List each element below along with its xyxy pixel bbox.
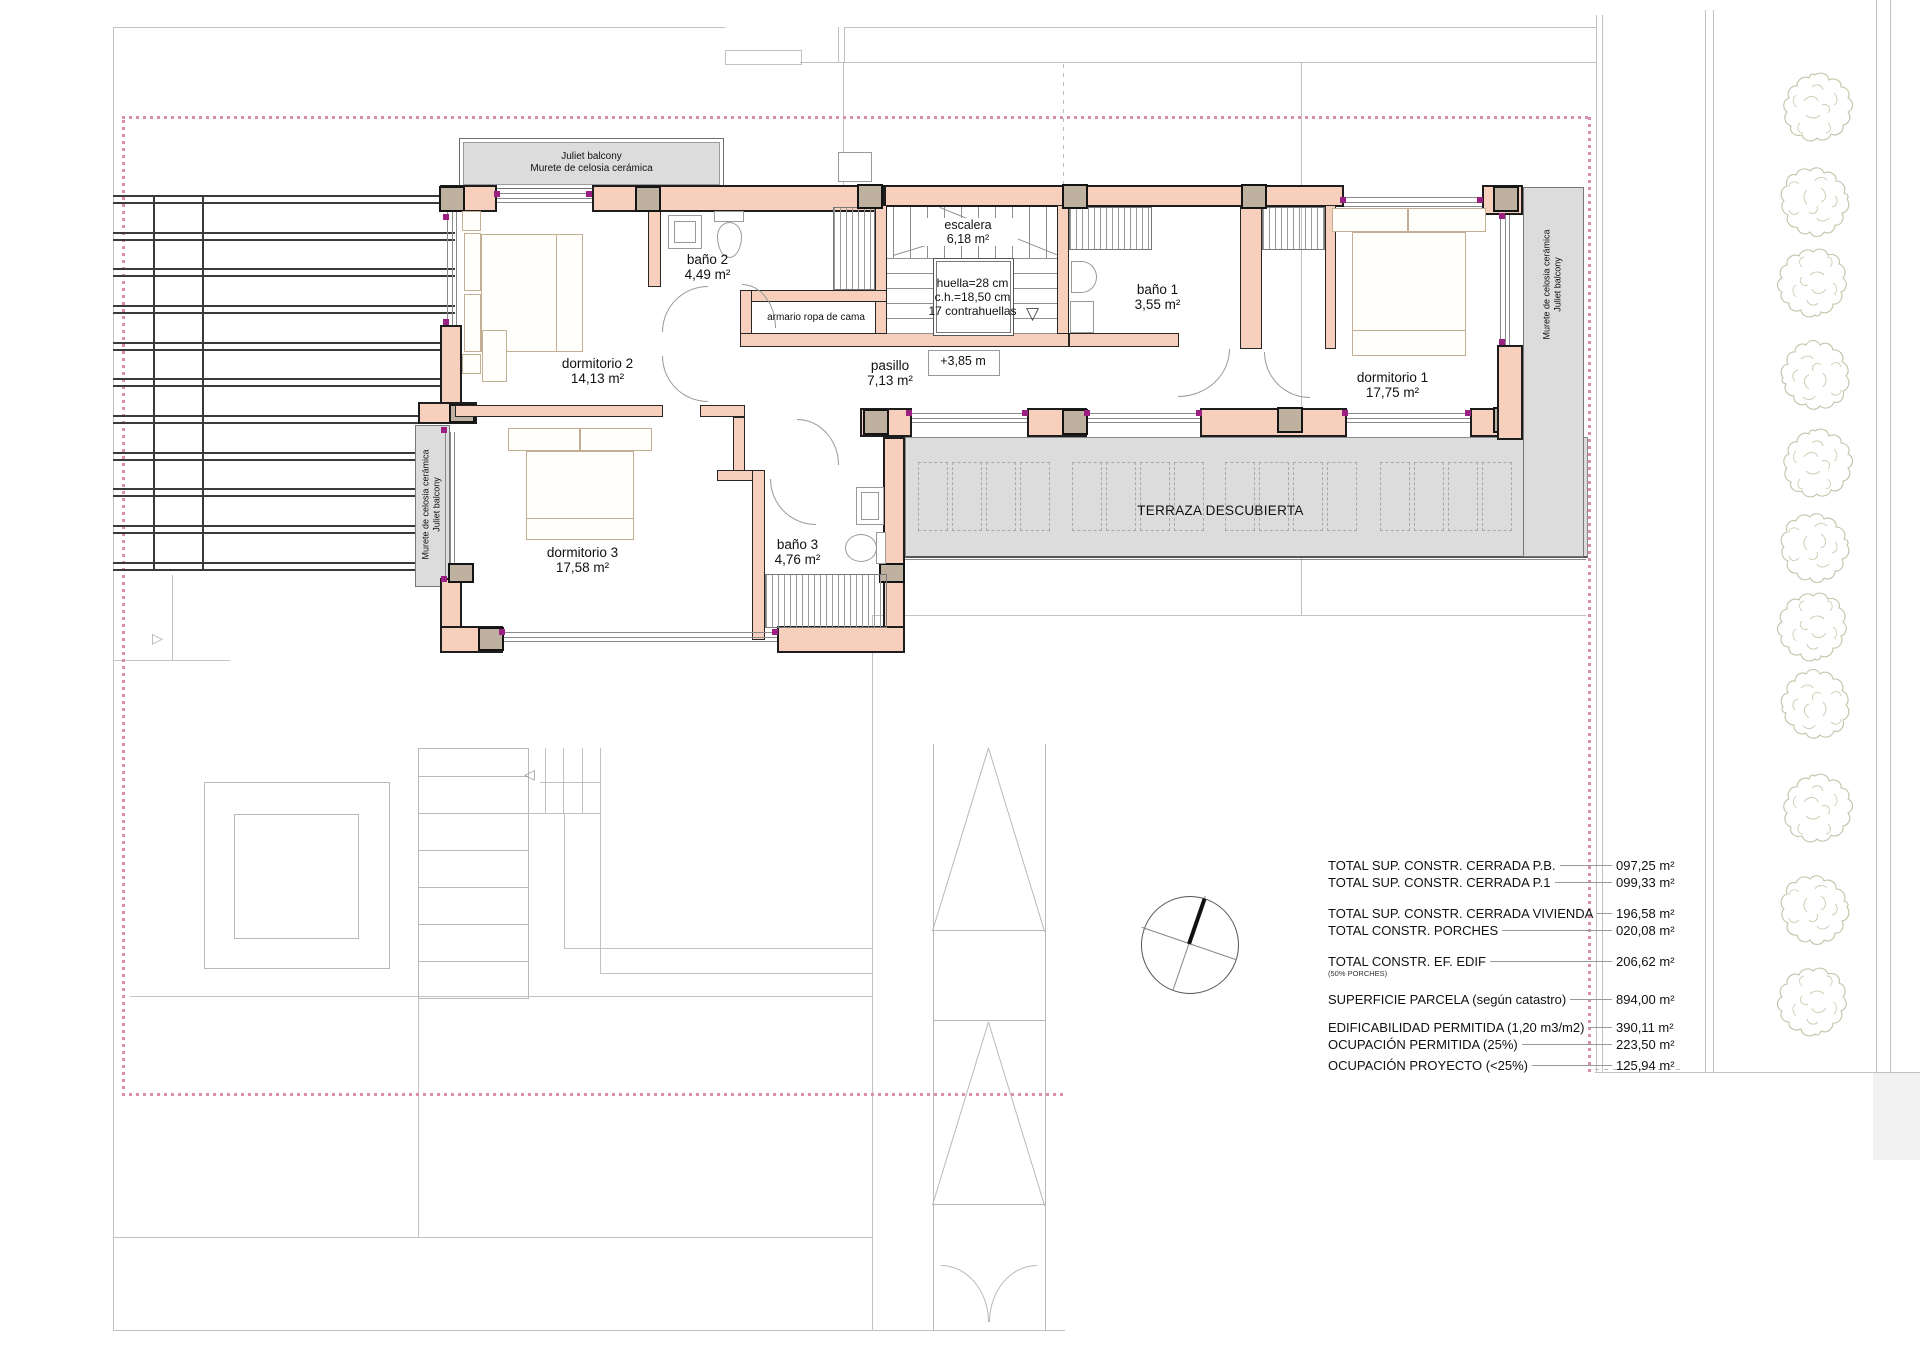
table-row: OCUPACIÓN PROYECTO (<25%)125,94 m² [1328, 1058, 1696, 1073]
escalera-name: escalera [918, 218, 1018, 232]
bano3-label: baño 3 4,76 m² [750, 537, 845, 567]
site-line [113, 27, 725, 28]
roof-line [988, 748, 1045, 932]
stair-dimensions-label: huella=28 cm c.h.=18,50 cm 17 contrahuel… [900, 276, 1045, 318]
leader-line [1502, 930, 1612, 931]
gate-swing-arc [989, 1265, 1037, 1322]
juliet-balcony-top-label: Juliet balcony Murete de celosia cerámic… [460, 151, 723, 174]
property-boundary-dash [122, 1093, 1065, 1096]
window [445, 432, 455, 578]
bed-pillow [508, 428, 580, 451]
site-line [113, 27, 114, 1330]
window [1347, 413, 1470, 423]
bed-pillow [580, 428, 652, 451]
courtyard-inner-outline [234, 814, 359, 939]
window [1087, 413, 1200, 423]
side-table [462, 354, 481, 374]
roof-line [988, 1022, 1045, 1206]
site-line [933, 1020, 1045, 1021]
table-row: TOTAL SUP. CONSTR. CERRADA VIVIENDA196,5… [1328, 906, 1696, 921]
window-marker [1340, 197, 1346, 203]
site-line [844, 27, 845, 62]
row-value: 020,08 m² [1616, 923, 1696, 938]
room-name: pasillo [845, 358, 935, 373]
column-marker [863, 409, 889, 435]
pergola-beam [113, 232, 455, 234]
table-row: TOTAL SUP. CONSTR. CERRADA P.1099,33 m² [1328, 875, 1696, 890]
window-marker [494, 191, 500, 197]
juliet-balcony-left-label: Murete de celosia cerámica Juliet balcon… [421, 430, 442, 580]
window-marker [906, 410, 912, 416]
leader-line [1570, 999, 1612, 1000]
pergola-beam [113, 415, 418, 417]
dormitorio1-label: dormitorio 1 17,75 m² [1325, 370, 1460, 400]
pergola-beam [113, 385, 455, 387]
tree-icon [1784, 429, 1853, 497]
terrace-tile [952, 462, 982, 531]
table-row: TOTAL CONSTR. EF. EDIF206,62 m² [1328, 954, 1696, 969]
pergola-beam [113, 495, 418, 497]
bed [1352, 232, 1466, 356]
vent-shaft [838, 152, 872, 182]
bano1-label: baño 1 3,55 m² [1110, 282, 1205, 312]
terrace-tile [1020, 462, 1050, 531]
window-marker [772, 629, 778, 635]
window [447, 212, 457, 325]
leader-line [1555, 882, 1612, 883]
pergola-beam [113, 452, 418, 454]
window [912, 413, 1027, 423]
tree-icon [1778, 968, 1847, 1036]
tree-icon [1781, 514, 1849, 583]
pasillo-label: pasillo 7,13 m² [845, 358, 935, 388]
row-label: OCUPACIÓN PROYECTO (<25%) [1328, 1058, 1528, 1073]
leader-line [1522, 1044, 1612, 1045]
column-marker [1493, 186, 1519, 212]
pergola-beam [113, 532, 418, 534]
room-area: 3,55 m² [1110, 297, 1205, 312]
wall-segment [1497, 345, 1523, 440]
site-line [872, 615, 873, 1330]
leader-line [1597, 913, 1612, 914]
table-row-note: (50% PORCHES) [1328, 969, 1696, 978]
wall-segment [1069, 333, 1179, 347]
window-marker [1342, 410, 1348, 416]
row-value: 125,94 m² [1616, 1058, 1696, 1073]
room-name: baño 3 [750, 537, 845, 552]
pergola-beam [113, 525, 418, 527]
escalera-area: 6,18 m² [918, 232, 1018, 246]
column-marker [1241, 184, 1267, 209]
window-marker [1084, 410, 1090, 416]
window-marker [443, 214, 449, 220]
lower-stair-outline [418, 748, 529, 999]
leader-line [1490, 961, 1612, 962]
terrace-label: TERRAZA DESCUBIERTA [1128, 503, 1313, 518]
leader-line [1560, 865, 1612, 866]
window-marker [1196, 410, 1202, 416]
room-name: baño 2 [660, 252, 755, 267]
row-value: 206,62 m² [1616, 954, 1696, 969]
pergola-beam [113, 562, 418, 564]
wall-segment [740, 333, 1069, 347]
row-label: SUPERFICIE PARCELA (según catastro) [1328, 992, 1566, 1007]
property-boundary-dash [122, 116, 125, 1096]
site-line [418, 997, 419, 1237]
terrace-tile [1106, 462, 1136, 531]
site-structure [725, 50, 802, 65]
wall-segment [1240, 205, 1262, 349]
room-area: 17,75 m² [1325, 385, 1460, 400]
window-marker [1477, 197, 1483, 203]
site-line [540, 782, 600, 783]
table-row: EDIFICABILIDAD PERMITIDA (1,20 m3/m2)390… [1328, 1020, 1696, 1035]
bed-pillow [464, 233, 481, 291]
stair-direction-arrow-icon: ▷ [152, 630, 163, 647]
bed-fold-line [1353, 330, 1465, 331]
pergola-beam [113, 459, 418, 461]
toilet-tank [714, 211, 744, 222]
row-value: 097,25 m² [1616, 858, 1696, 873]
site-line [933, 744, 934, 1330]
bed-pillow [1332, 208, 1408, 232]
tree-icon [1781, 670, 1849, 739]
row-value: 390,11 m² [1616, 1020, 1696, 1035]
tree-icon [1778, 593, 1847, 661]
window [1344, 197, 1482, 207]
window-marker [1499, 213, 1505, 219]
tree-icon [1781, 876, 1849, 945]
door-arc [662, 356, 708, 402]
site-line [113, 1237, 872, 1238]
site-line [600, 748, 601, 973]
site-line [600, 973, 872, 974]
bench [482, 330, 507, 382]
site-line [1890, 0, 1891, 1072]
room-name: dormitorio 2 [530, 356, 665, 371]
row-label: OCUPACIÓN PERMITIDA (25%) [1328, 1037, 1518, 1052]
pergola-beam [113, 239, 455, 241]
site-line [582, 748, 583, 813]
terrace-tile [918, 462, 948, 531]
site-line [838, 27, 839, 62]
site-shading [1873, 1073, 1920, 1160]
site-line [1705, 10, 1706, 1072]
room-area: 4,76 m² [750, 552, 845, 567]
compass-circle [1141, 896, 1239, 994]
table-row: SUPERFICIE PARCELA (según catastro)894,0… [1328, 992, 1696, 1007]
dormitorio3-label: dormitorio 3 17,58 m² [515, 545, 650, 575]
pergola-beam [113, 342, 455, 344]
room-area: 4,49 m² [660, 267, 755, 282]
row-value: 196,58 m² [1616, 906, 1696, 921]
areas-table: TOTAL SUP. CONSTR. CERRADA P.B.097,25 m²… [1328, 858, 1696, 1073]
site-line [172, 575, 173, 660]
window-marker [499, 629, 505, 635]
room-name: baño 1 [1110, 282, 1205, 297]
pergola-beam [113, 422, 418, 424]
armario-label: armario ropa de cama [752, 312, 880, 324]
site-line [800, 62, 1597, 63]
floor-plan-sheet: ◁ ▷ TERRAZA DESCUBIERTA Juliet balcony M… [0, 0, 1920, 1357]
pergola-beam [113, 312, 455, 314]
site-line [563, 748, 564, 813]
window-marker [1022, 410, 1028, 416]
pergola-beam [113, 349, 455, 351]
window-marker [441, 427, 447, 433]
site-line [933, 1204, 1045, 1205]
column-marker [1277, 407, 1303, 433]
terrace-tile [1327, 462, 1357, 531]
sink [1071, 261, 1097, 293]
sink [856, 487, 884, 525]
column-marker [1062, 184, 1088, 209]
row-label: TOTAL SUP. CONSTR. CERRADA P.1 [1328, 875, 1551, 890]
bed [526, 451, 634, 540]
stair-down-arrow-icon: ▽ [1026, 304, 1039, 324]
room-area: 17,58 m² [515, 560, 650, 575]
window [503, 632, 777, 642]
toilet [1070, 301, 1094, 333]
wall-segment [884, 185, 1064, 207]
terrace-tile [1140, 462, 1170, 531]
leader-line [1532, 1065, 1612, 1066]
escalera-label: escalera 6,18 m² [918, 218, 1018, 246]
window-marker [1465, 410, 1471, 416]
side-table [462, 211, 481, 231]
pergola-beam [113, 569, 418, 571]
wall-segment [1064, 185, 1244, 207]
site-line [545, 748, 546, 813]
door-arc [1178, 349, 1230, 397]
wall-segment [455, 405, 663, 417]
wall-segment [440, 325, 462, 407]
room-area: 7,13 m² [845, 373, 935, 388]
pergola-beam [113, 202, 455, 204]
pergola-beam [113, 488, 418, 490]
row-label: EDIFICABILIDAD PERMITIDA (1,20 m3/m2) [1328, 1020, 1584, 1035]
site-line [933, 930, 1045, 931]
terrace-tile [1293, 462, 1323, 531]
bano2-label: baño 2 4,49 m² [660, 252, 755, 282]
north-compass [1141, 896, 1237, 992]
window-marker [1499, 339, 1505, 345]
gate-swing-arc [941, 1265, 989, 1322]
row-label: TOTAL SUP. CONSTR. CERRADA VIVIENDA [1328, 906, 1593, 921]
closet-hatch [1069, 207, 1152, 250]
juliet-balcony-top: Juliet balcony Murete de celosia cerámic… [459, 138, 724, 189]
pergola-beam [113, 378, 455, 380]
site-line [564, 813, 565, 948]
window-marker [586, 191, 592, 197]
closet-hatch [1262, 207, 1325, 250]
pergola-beam [113, 275, 455, 277]
pergola-post-line [202, 195, 204, 571]
door-arc [770, 479, 816, 525]
site-line [1045, 744, 1046, 1330]
terrace-tile [1448, 462, 1478, 531]
shower-hatch [765, 574, 887, 628]
site-line [113, 660, 230, 661]
site-line [1713, 10, 1714, 1072]
row-label: TOTAL CONSTR. PORCHES [1328, 923, 1498, 938]
tree-icon [1784, 774, 1853, 842]
row-label: TOTAL SUP. CONSTR. CERRADA P.B. [1328, 858, 1556, 873]
room-name: dormitorio 1 [1325, 370, 1460, 385]
row-value: 223,50 m² [1616, 1037, 1696, 1052]
row-label: TOTAL CONSTR. EF. EDIF [1328, 954, 1486, 969]
site-line [564, 948, 872, 949]
wall-segment [777, 626, 905, 653]
bed-pillow [464, 294, 481, 352]
toilet [845, 534, 877, 562]
site-line [1063, 62, 1064, 185]
table-row: TOTAL SUP. CONSTR. CERRADA P.B.097,25 m² [1328, 858, 1696, 873]
property-boundary-dash [122, 116, 1590, 119]
terrace-tile [1225, 462, 1255, 531]
column-marker [439, 186, 465, 212]
room-area: 14,13 m² [530, 371, 665, 386]
bed-fold-line [527, 518, 633, 519]
tree-icon [1781, 168, 1849, 237]
site-line [872, 615, 1586, 616]
tree-icon [1784, 73, 1853, 141]
window [1500, 215, 1510, 345]
terrace-tile [1174, 462, 1204, 531]
terrace-edge-line [905, 559, 1586, 560]
column-marker [857, 184, 883, 209]
column-marker [635, 186, 661, 212]
tree-icon [1778, 249, 1847, 317]
row-value: 894,00 m² [1616, 992, 1696, 1007]
toilet-tank [876, 532, 886, 564]
door-arc [662, 286, 708, 332]
column-marker [448, 563, 474, 583]
roof-line [932, 1022, 989, 1206]
dormitorio2-label: dormitorio 2 14,13 m² [530, 356, 665, 386]
stair-direction-arrow-icon: ◁ [524, 766, 535, 783]
table-row: TOTAL CONSTR. PORCHES020,08 m² [1328, 923, 1696, 938]
pergola-beam [113, 305, 455, 307]
pergola-beam [113, 195, 455, 197]
window [497, 193, 592, 203]
pergola-post-line [153, 195, 155, 571]
site-line [113, 1330, 1065, 1331]
terrace-tile [1414, 462, 1444, 531]
row-value: 099,33 m² [1616, 875, 1696, 890]
terrace-tile [986, 462, 1016, 531]
tree-icon [1781, 341, 1849, 410]
site-line [1876, 0, 1877, 1072]
wall-segment [700, 405, 745, 417]
leader-line [1588, 1027, 1612, 1028]
terrace-name: TERRAZA DESCUBIERTA [1137, 503, 1303, 518]
bed-pillow [1408, 208, 1486, 232]
terrace-tile [1482, 462, 1512, 531]
sink [668, 215, 702, 249]
wall-segment [1057, 205, 1069, 347]
roof-line [932, 748, 989, 932]
site-line [845, 27, 1597, 28]
wall-segment [1200, 408, 1347, 437]
duct-hatch [833, 207, 875, 290]
level-label: +3,85 m [928, 354, 998, 369]
door-arc [797, 419, 839, 465]
terrace-tile [1380, 462, 1410, 531]
terrace-tile [1072, 462, 1102, 531]
window-marker [441, 576, 447, 582]
bed-fold-line [556, 235, 557, 351]
pergola-beam [113, 268, 455, 270]
juliet-balcony-right-label: Murete de celosia cerámica Juliet balcon… [1542, 210, 1563, 360]
terrace-tile [1259, 462, 1289, 531]
table-row: OCUPACIÓN PERMITIDA (25%)223,50 m² [1328, 1037, 1696, 1052]
window-marker [443, 319, 449, 325]
room-name: dormitorio 3 [515, 545, 650, 560]
door-arc [1264, 352, 1310, 398]
